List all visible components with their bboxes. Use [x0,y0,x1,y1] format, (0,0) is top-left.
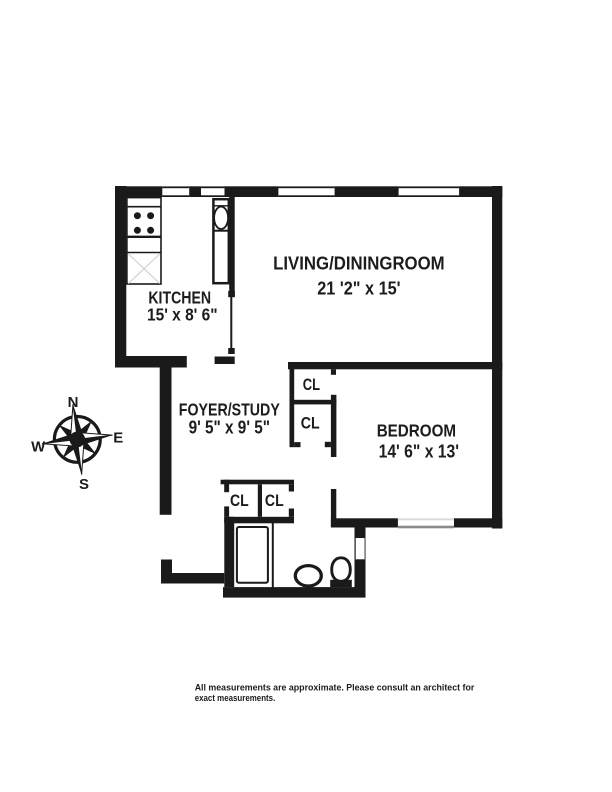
svg-text:CL: CL [265,491,284,510]
svg-text:N: N [68,394,79,411]
svg-text:LIVING/DININGROOM: LIVING/DININGROOM [273,254,445,274]
svg-text:BEDROOM: BEDROOM [377,421,456,441]
svg-text:exact measurements.: exact measurements. [195,693,276,704]
svg-text:CL: CL [230,491,249,510]
svg-text:S: S [79,476,89,493]
svg-text:15' x 8' 6": 15' x 8' 6" [147,305,218,325]
svg-text:CL: CL [301,413,320,432]
svg-text:W: W [31,438,46,455]
svg-text:FOYER/STUDY: FOYER/STUDY [179,400,280,420]
svg-text:21 '2" x 15': 21 '2" x 15' [317,279,400,299]
svg-text:E: E [113,429,123,446]
svg-text:14' 6" x 13': 14' 6" x 13' [379,442,459,462]
svg-text:All measurements are approxima: All measurements are approximate. Please… [195,682,475,693]
svg-text:9' 5" x 9' 5": 9' 5" x 9' 5" [189,418,270,438]
svg-text:CL: CL [303,375,320,394]
